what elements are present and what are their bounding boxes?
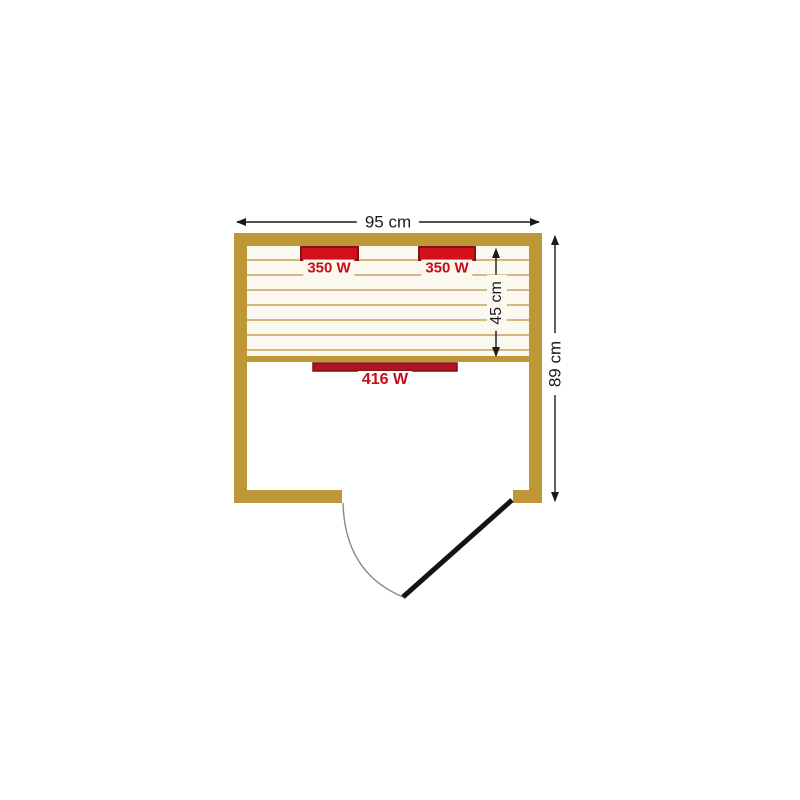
top-wall [234,233,542,246]
heater-top-left [301,247,358,260]
height-dimension-label: 89 cm [545,333,566,395]
floor-plan-drawing [0,0,800,800]
heater-top-left-label: 350 W [303,260,354,277]
heater-front [313,363,457,371]
bottom-wall-left-of-door [234,490,342,503]
width-dimension-label: 95 cm [357,212,419,233]
door-leaf [403,500,512,597]
heater-front-label: 416 W [358,371,412,389]
bottom-wall-right-of-door [513,490,542,503]
right-wall [529,233,542,503]
left-wall [234,233,247,503]
bench-front-edge [247,356,529,362]
door-swing-arc [343,503,403,597]
bench-depth-dimension-label: 45 cm [487,275,507,331]
sauna-floor-plan: 95 cm 89 cm 45 cm 350 W 350 W 416 W [0,0,800,800]
heater-top-right [419,247,475,260]
heater-top-right-label: 350 W [421,260,472,277]
